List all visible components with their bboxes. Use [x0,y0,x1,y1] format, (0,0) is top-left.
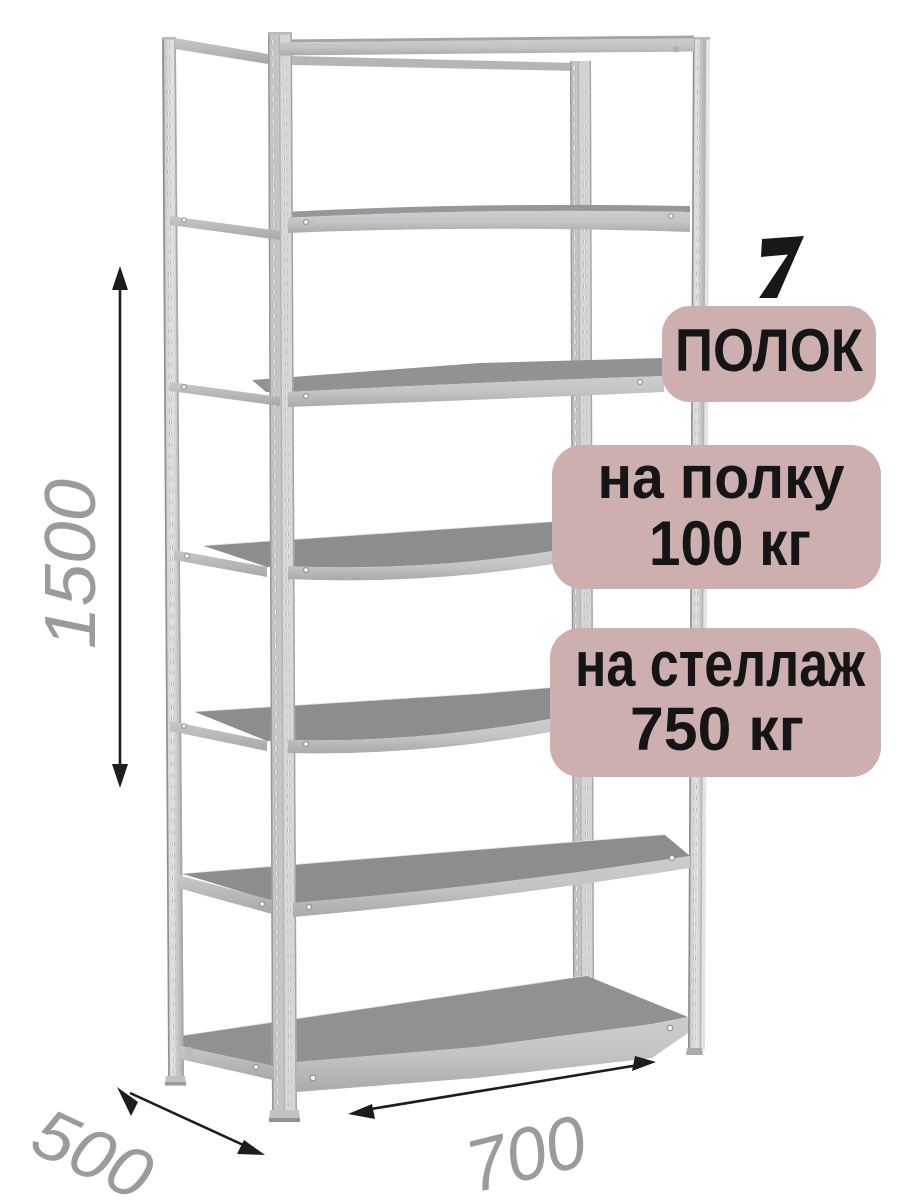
svg-text:на полку: на полку [598,444,846,511]
svg-text:500: 500 [21,1093,165,1200]
svg-text:700: 700 [458,1099,595,1200]
svg-text:на стеллаж: на стеллаж [575,628,866,700]
svg-text:ПОЛОК: ПОЛОК [675,317,863,384]
svg-text:100 кг: 100 кг [649,509,811,579]
svg-text:1500: 1500 [31,479,111,649]
svg-text:750 кг: 750 кг [630,695,804,763]
